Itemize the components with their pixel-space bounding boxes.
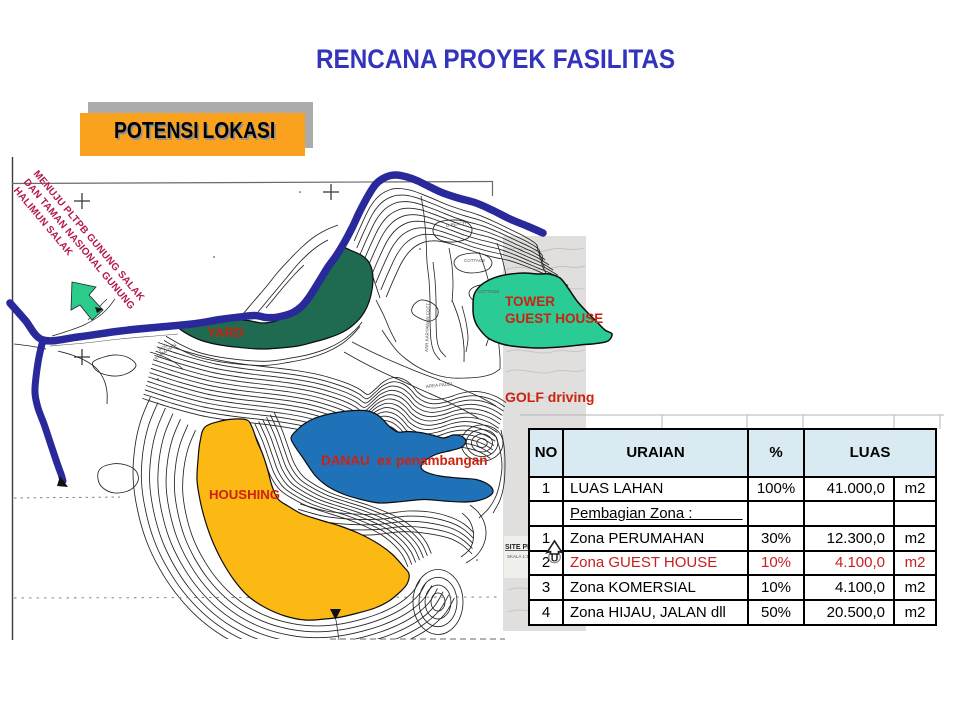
svg-text:U: U — [551, 553, 559, 565]
